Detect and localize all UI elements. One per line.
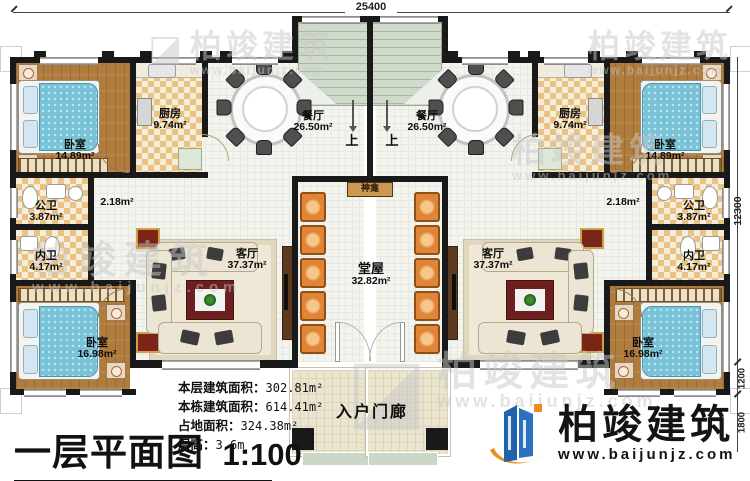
room-label-living-left: 客厅 37.37m²: [227, 248, 266, 272]
dimension-height-main: 12300: [732, 189, 744, 233]
sink: [674, 184, 694, 199]
room-label-private-bath-right: 内卫 4.17m²: [677, 250, 710, 274]
wall: [130, 360, 162, 368]
window: [462, 57, 508, 65]
wall-pier: [626, 51, 638, 63]
window: [40, 57, 98, 65]
room-area: 32.82m²: [351, 276, 390, 288]
porch-step: [368, 452, 438, 466]
stat-value: 3.6m: [216, 438, 245, 452]
window: [302, 16, 360, 24]
dining-chair: [468, 140, 484, 155]
hall-chair: [414, 225, 440, 255]
room-area: 37.37m²: [473, 260, 512, 272]
stat-label: 占地面积：: [178, 419, 241, 433]
cushion: [540, 329, 560, 345]
pillow: [23, 309, 38, 338]
floor-plan: 25400 12300 1200 1800: [0, 0, 750, 481]
stat-row: 本栋建筑面积：614.41m²: [178, 396, 323, 410]
room-label-public-bath-left: 公卫 3.87m²: [29, 200, 62, 224]
nightstand: [18, 64, 38, 81]
kitchen-sink: [148, 64, 176, 78]
room-area: 16.98m²: [623, 349, 662, 361]
wall: [578, 360, 610, 368]
stat-value: 324.38m²: [241, 419, 299, 433]
window: [722, 188, 730, 218]
room-label-hall: 堂屋 32.82m²: [351, 262, 390, 288]
window: [722, 302, 730, 372]
wall-pier: [220, 51, 232, 63]
window: [24, 389, 66, 397]
room-label-bedroom-top-left: 卧室 14.89m²: [55, 139, 94, 163]
dimension-height-step: 1200: [737, 364, 748, 394]
plan-title: 一层平面图: [14, 432, 204, 473]
window: [618, 389, 660, 397]
room-label-bedroom-bottom-right: 卧室 16.98m²: [623, 337, 662, 361]
wall: [10, 224, 94, 230]
room-area: 2.18m²: [100, 197, 133, 209]
stat-label: 本层建筑面积：: [178, 381, 266, 395]
mat: [580, 332, 604, 353]
window: [722, 240, 730, 274]
stat-label: 层高：: [178, 438, 216, 452]
room-area: 14.89m²: [55, 151, 94, 163]
cushion: [151, 294, 167, 311]
window: [10, 84, 18, 150]
wall-pier: [508, 51, 520, 63]
wall: [260, 360, 292, 368]
room-label-private-bath-left: 内卫 4.17m²: [29, 250, 62, 274]
room-label-public-bath-right: 公卫 3.87m²: [677, 200, 710, 224]
area-label-corridor-right: 2.18m²: [606, 197, 639, 209]
hall-chair: [300, 225, 326, 255]
shrine-name: 神龛: [361, 183, 379, 193]
wall: [292, 176, 298, 368]
hall-chair: [414, 258, 440, 288]
room-label-dining-right: 餐厅 26.50m²: [407, 110, 446, 134]
cushion: [206, 247, 224, 262]
stair-arrow: [352, 100, 354, 128]
stair-arrow-head: [383, 126, 391, 132]
stat-row: 层高：3.6m: [178, 434, 323, 448]
sofa: [158, 322, 262, 354]
room-area: 16.98m²: [77, 349, 116, 361]
wall: [532, 172, 604, 178]
wall: [604, 280, 610, 368]
room-name: 堂屋: [358, 261, 384, 276]
porch-step: [302, 452, 372, 466]
stat-label: 本栋建筑面积：: [178, 400, 266, 414]
fridge: [178, 148, 202, 170]
washbasin: [68, 186, 83, 201]
wall: [646, 224, 730, 230]
room-area: 3.87m²: [677, 212, 710, 224]
pillow: [23, 86, 38, 114]
room-area: 26.50m²: [407, 122, 446, 134]
room-area: 26.50m²: [293, 122, 332, 134]
wall: [604, 280, 730, 286]
window: [232, 57, 278, 65]
dimension-width: 25400: [345, 1, 397, 13]
room-label-living-right: 客厅 37.37m²: [473, 248, 512, 272]
wall-pier: [200, 51, 212, 63]
wall-pier: [446, 51, 458, 63]
stat-row: 本层建筑面积：302.81m²: [178, 377, 323, 391]
stair-up-label-left: 上: [345, 134, 358, 148]
cushion: [180, 329, 200, 345]
pillow: [702, 86, 717, 114]
room-label-kitchen-left: 厨房 9.74m²: [153, 108, 186, 132]
window: [722, 84, 730, 150]
pillow: [702, 120, 717, 148]
window: [480, 360, 578, 370]
hall-chair: [300, 291, 326, 321]
washbasin: [657, 186, 672, 201]
pillow: [23, 120, 38, 148]
porch-label: 入户门廊: [336, 404, 408, 422]
wall: [130, 280, 136, 368]
stove: [137, 98, 152, 126]
sink: [702, 236, 720, 251]
pillow: [23, 345, 38, 374]
wall-pier: [528, 51, 540, 63]
wall: [370, 176, 448, 182]
wall-pier: [282, 51, 294, 63]
cushion: [506, 330, 526, 346]
dining-chair: [256, 140, 272, 155]
plant: [204, 294, 216, 306]
room-area: 4.17m²: [29, 262, 62, 274]
hall-chair: [300, 324, 326, 354]
nightstand: [614, 362, 634, 379]
cushion: [573, 294, 589, 311]
stat-row: 占地面积：324.38m²: [178, 415, 323, 429]
porch-pillar: [426, 428, 448, 450]
cushion: [151, 262, 167, 279]
sofa: [478, 322, 582, 354]
wall: [442, 176, 448, 368]
corner-marker: [730, 46, 750, 72]
hall-chair: [414, 324, 440, 354]
wall-center: [367, 16, 373, 182]
nightstand: [106, 362, 126, 379]
fridge: [538, 148, 562, 170]
coffee-table: [186, 280, 234, 320]
mat: [136, 332, 160, 353]
window: [544, 57, 588, 65]
plant: [524, 294, 536, 306]
dining-chair: [509, 100, 524, 116]
window: [152, 57, 196, 65]
stair-arrow: [387, 100, 389, 128]
window: [10, 188, 18, 218]
stats-block: 本层建筑面积：302.81m² 本栋建筑面积：614.41m² 占地面积：324…: [178, 377, 323, 453]
room-label-kitchen-right: 厨房 9.74m²: [553, 108, 586, 132]
wall-pier: [588, 51, 600, 63]
room-area: 3.87m²: [29, 212, 62, 224]
logo-mark-icon: [486, 398, 548, 468]
dining-table-top: [242, 86, 288, 132]
area-label-corridor-left: 2.18m²: [100, 197, 133, 209]
room-area: 37.37m²: [227, 260, 266, 272]
wall: [10, 172, 136, 178]
stove: [588, 98, 603, 126]
room-area: 9.74m²: [553, 120, 586, 132]
room-label-bedroom-bottom-left: 卧室 16.98m²: [77, 337, 116, 361]
cushion: [214, 330, 234, 346]
sink: [46, 184, 66, 199]
hall-chair: [414, 192, 440, 222]
window: [674, 389, 716, 397]
wall: [202, 57, 208, 137]
window: [380, 16, 438, 24]
wall: [292, 176, 370, 182]
shrine-label: 神龛: [361, 184, 379, 194]
stat-value: 614.41m²: [266, 400, 324, 414]
wall: [10, 280, 136, 286]
pillow: [702, 345, 717, 374]
coffee-table: [506, 280, 554, 320]
stat-value: 302.81m²: [266, 381, 324, 395]
logo-name: 柏竣建筑: [558, 404, 735, 446]
window: [80, 389, 122, 397]
dining-chair: [217, 100, 232, 116]
tv: [452, 274, 456, 310]
hall-chair: [414, 291, 440, 321]
window: [10, 240, 18, 274]
up-text: 上: [345, 133, 358, 148]
wall: [604, 57, 610, 178]
room-area: 9.74m²: [153, 120, 186, 132]
logo-url: www.baijunjz.com: [558, 446, 735, 463]
nightstand: [702, 64, 722, 81]
window: [10, 302, 18, 372]
hall-chair: [300, 192, 326, 222]
stair-arrow-head: [349, 126, 357, 132]
wall: [448, 360, 480, 368]
dining-table-top: [452, 86, 498, 132]
pillow: [702, 309, 717, 338]
hall-chair: [300, 258, 326, 288]
room-area: 2.18m²: [606, 197, 639, 209]
wall: [604, 172, 730, 178]
window: [642, 57, 700, 65]
stair-up-label-right: 上: [385, 134, 398, 148]
window: [162, 360, 260, 370]
cushion: [573, 262, 589, 279]
door-arc: [369, 322, 401, 361]
cushion: [516, 247, 534, 262]
tv: [284, 274, 288, 310]
room-area: 4.17m²: [677, 262, 710, 274]
company-logo: 柏竣建筑 www.baijunjz.com: [486, 398, 735, 468]
room-label-dining-left: 餐厅 26.50m²: [293, 110, 332, 134]
wall: [532, 57, 538, 137]
wall-pier: [102, 51, 114, 63]
porch-name: 入户门廊: [336, 404, 408, 421]
kitchen-sink: [564, 64, 592, 78]
wall: [130, 57, 136, 178]
room-area: 14.89m²: [645, 151, 684, 163]
sink: [20, 236, 38, 251]
wall: [136, 172, 208, 178]
up-text: 上: [385, 133, 398, 148]
dimension-height-porch: 1800: [737, 408, 748, 438]
wall-pier: [140, 51, 152, 63]
room-label-bedroom-top-right: 卧室 14.89m²: [645, 139, 684, 163]
door-arc: [339, 322, 371, 361]
